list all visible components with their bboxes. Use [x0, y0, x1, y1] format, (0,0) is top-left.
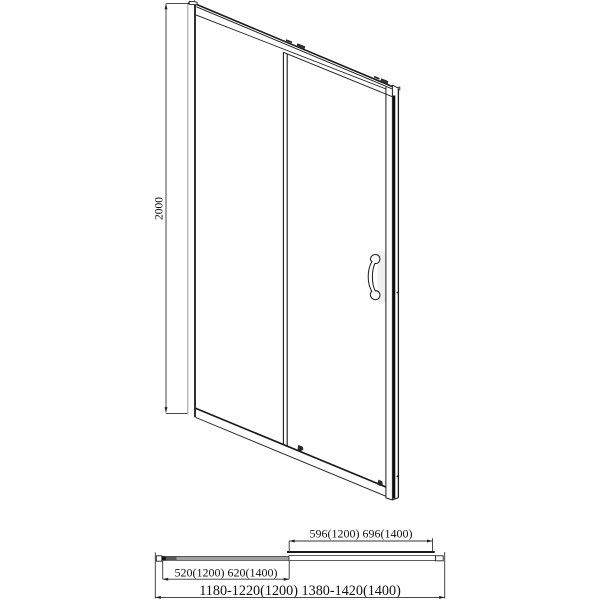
svg-text:1180-1220(1200) 1380-1420(140: 1180-1220(1200) 1380-1420(1400) [199, 583, 401, 599]
svg-text:520(1200) 620(1400): 520(1200) 620(1400) [175, 565, 278, 579]
svg-text:2000: 2000 [154, 197, 166, 220]
svg-text:596(1200) 696(1400): 596(1200) 696(1400) [310, 527, 413, 541]
